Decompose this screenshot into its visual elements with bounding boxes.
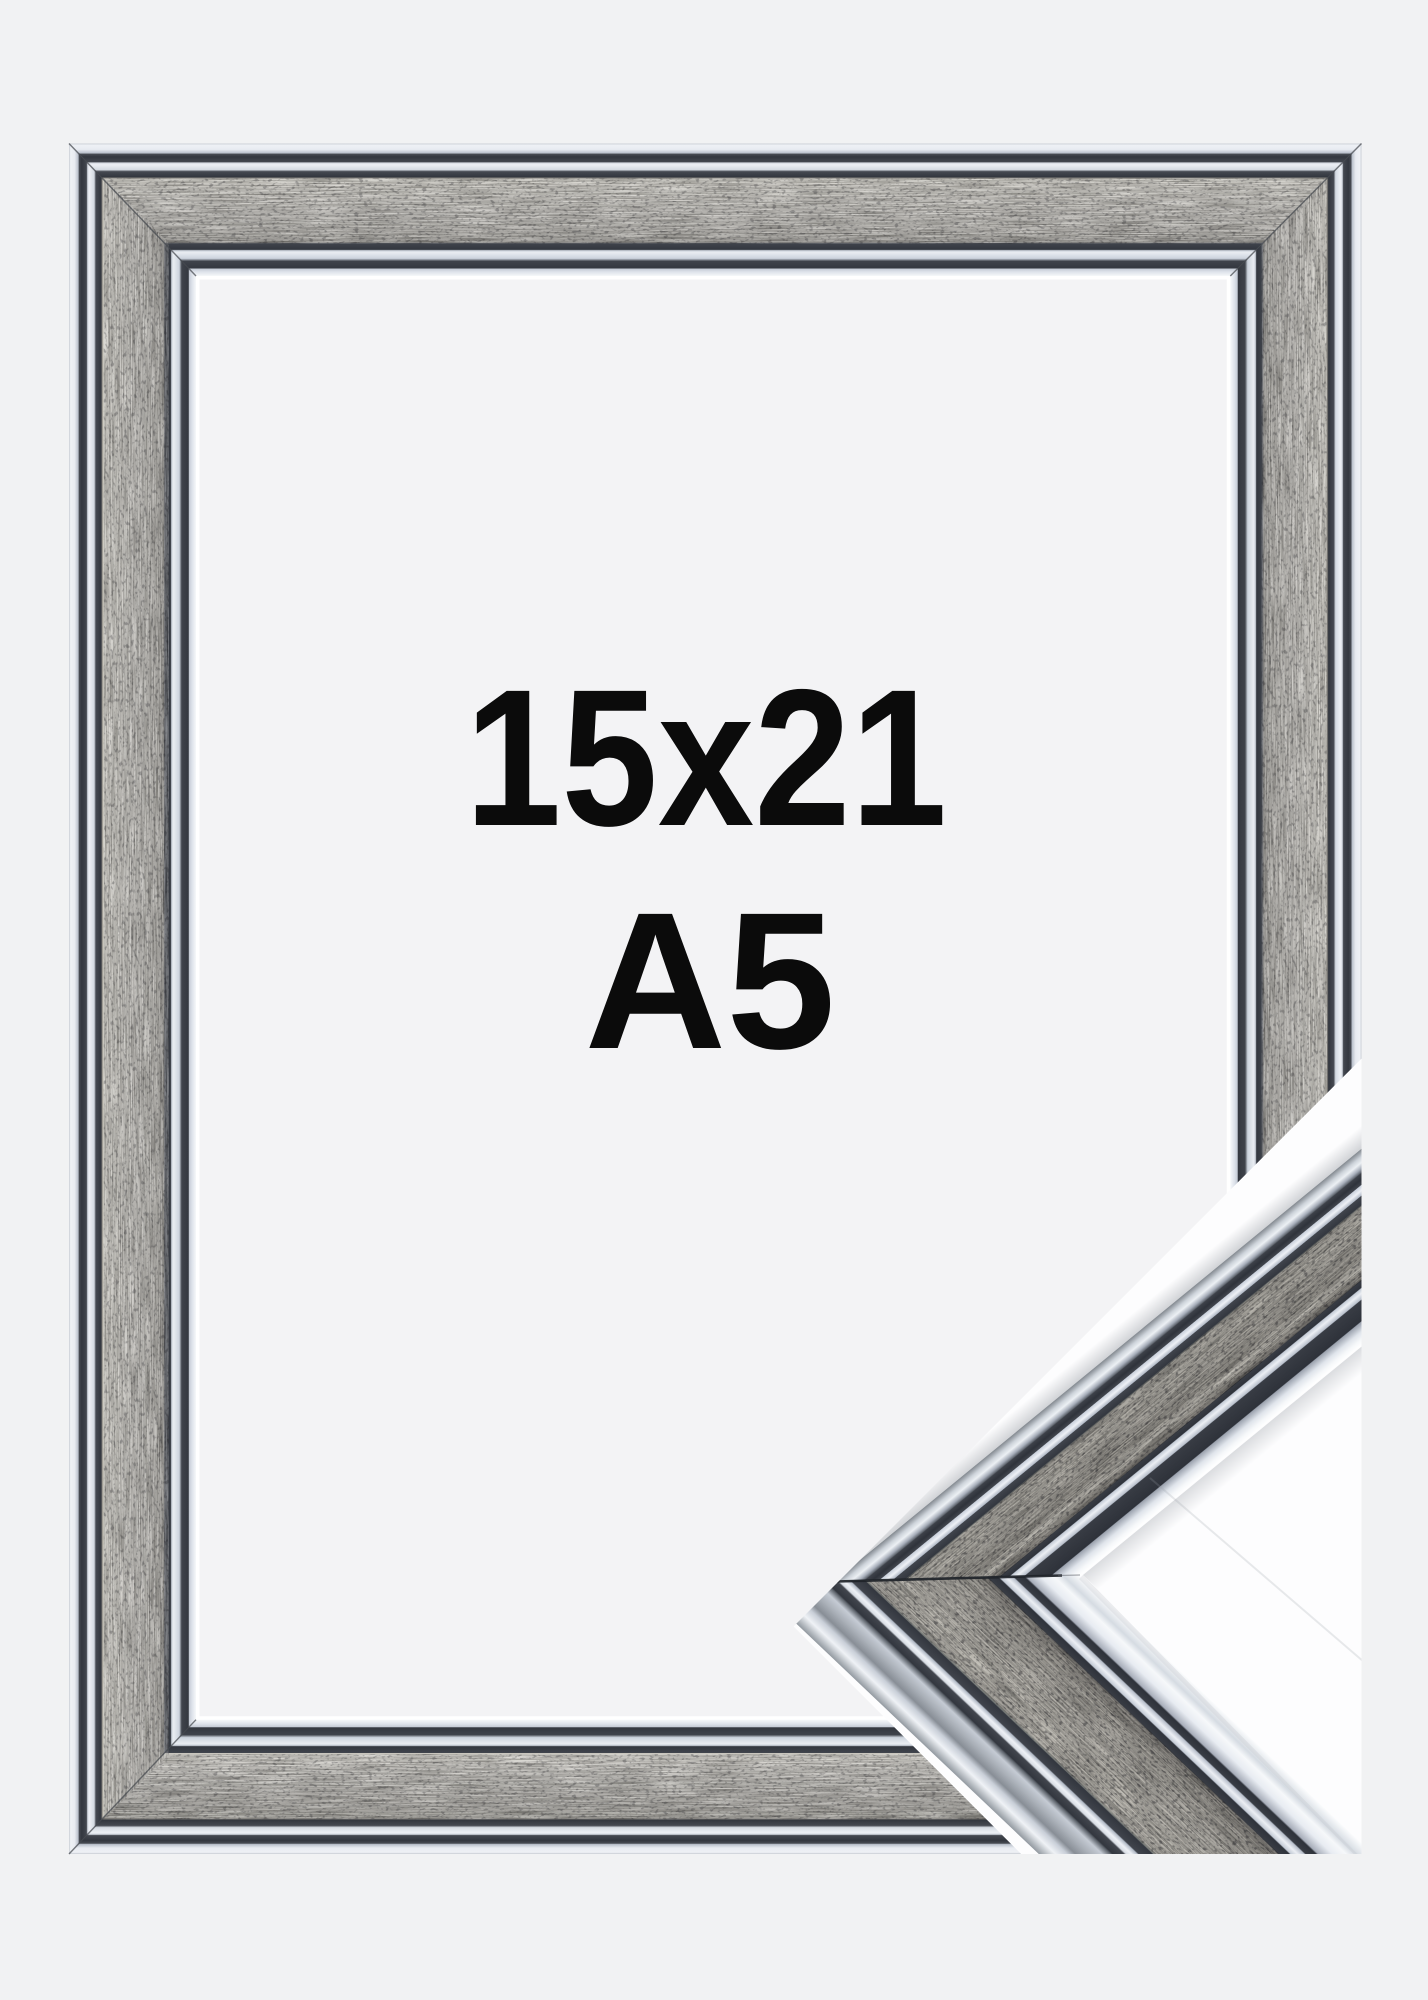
- svg-text:15x21: 15x21: [465, 649, 947, 867]
- svg-text:A5: A5: [585, 872, 836, 1090]
